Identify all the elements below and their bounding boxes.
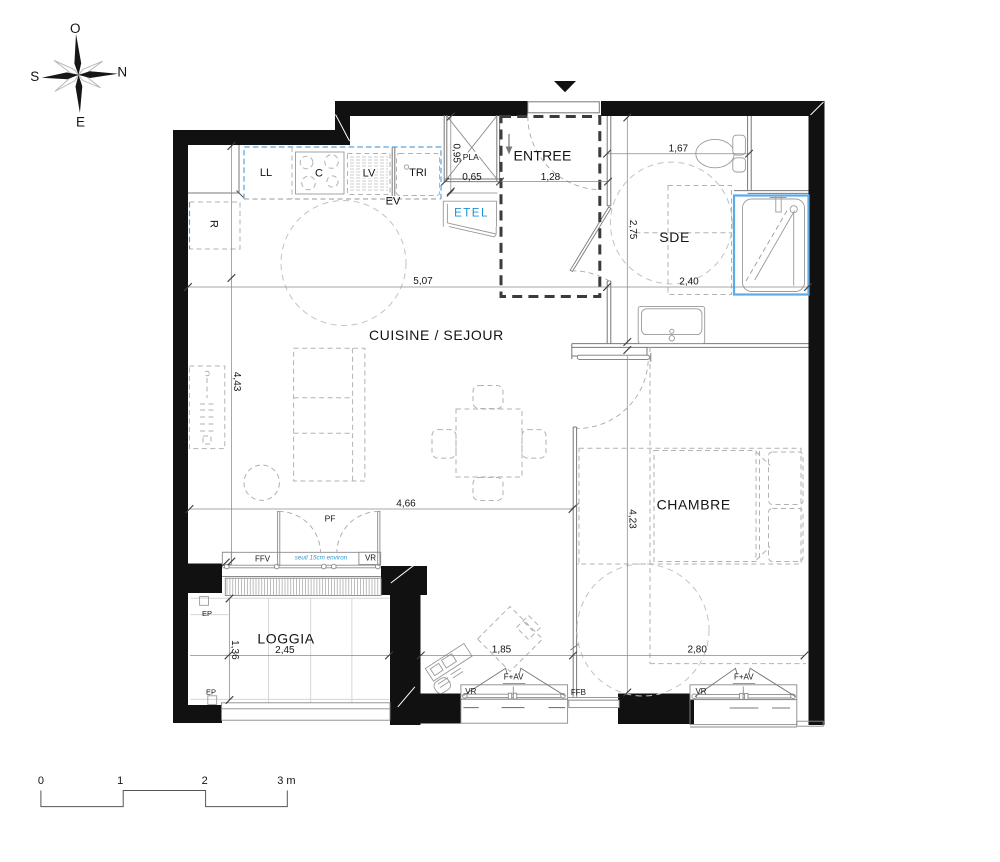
- svg-text:VR: VR: [465, 687, 476, 696]
- svg-text:F+AV: F+AV: [734, 673, 754, 682]
- svg-text:TRI: TRI: [409, 167, 427, 179]
- svg-text:0,65: 0,65: [462, 172, 482, 183]
- svg-text:3 m: 3 m: [277, 775, 295, 787]
- svg-text:1,85: 1,85: [492, 645, 512, 656]
- svg-text:O: O: [70, 21, 81, 36]
- svg-text:1,28: 1,28: [541, 172, 561, 183]
- svg-text:2,40: 2,40: [679, 277, 699, 288]
- svg-text:EP: EP: [202, 609, 212, 618]
- svg-text:1,67: 1,67: [669, 144, 689, 155]
- svg-text:LL: LL: [260, 167, 272, 179]
- svg-text:FFV: FFV: [255, 554, 271, 563]
- svg-text:EP: EP: [206, 687, 216, 696]
- svg-text:ETEL: ETEL: [454, 208, 489, 220]
- svg-text:SDE: SDE: [659, 229, 690, 245]
- svg-text:4,43: 4,43: [231, 372, 242, 392]
- svg-text:EV: EV: [386, 196, 401, 208]
- svg-text:4,66: 4,66: [396, 499, 416, 510]
- svg-text:5,07: 5,07: [413, 276, 433, 287]
- svg-text:VR: VR: [365, 554, 376, 563]
- svg-text:ENTREE: ENTREE: [514, 148, 572, 164]
- svg-text:LV: LV: [363, 168, 376, 180]
- svg-text:seuil 15cm environ: seuil 15cm environ: [295, 554, 348, 561]
- svg-text:2,75: 2,75: [627, 220, 638, 240]
- svg-text:S: S: [30, 69, 39, 84]
- svg-text:E: E: [76, 115, 85, 130]
- svg-text:0: 0: [38, 775, 44, 787]
- svg-text:CHAMBRE: CHAMBRE: [657, 497, 731, 513]
- svg-text:PF: PF: [325, 514, 336, 524]
- svg-text:1,36: 1,36: [229, 640, 240, 660]
- svg-text:R: R: [208, 220, 220, 228]
- svg-text:2: 2: [202, 775, 208, 787]
- svg-text:PLA: PLA: [463, 152, 479, 162]
- svg-text:F+AV: F+AV: [504, 673, 524, 682]
- svg-text:2,80: 2,80: [687, 645, 707, 656]
- svg-text:4,23: 4,23: [627, 509, 638, 529]
- svg-text:N: N: [117, 65, 127, 80]
- svg-text:1: 1: [117, 775, 123, 787]
- svg-text:LOGGIA: LOGGIA: [257, 630, 314, 646]
- svg-text:FFB: FFB: [571, 688, 586, 697]
- svg-text:2,45: 2,45: [275, 645, 295, 656]
- svg-text:0,95: 0,95: [450, 143, 461, 163]
- svg-text:VR: VR: [695, 687, 706, 696]
- svg-text:CUISINE / SEJOUR: CUISINE / SEJOUR: [369, 327, 504, 343]
- svg-text:C: C: [315, 168, 323, 180]
